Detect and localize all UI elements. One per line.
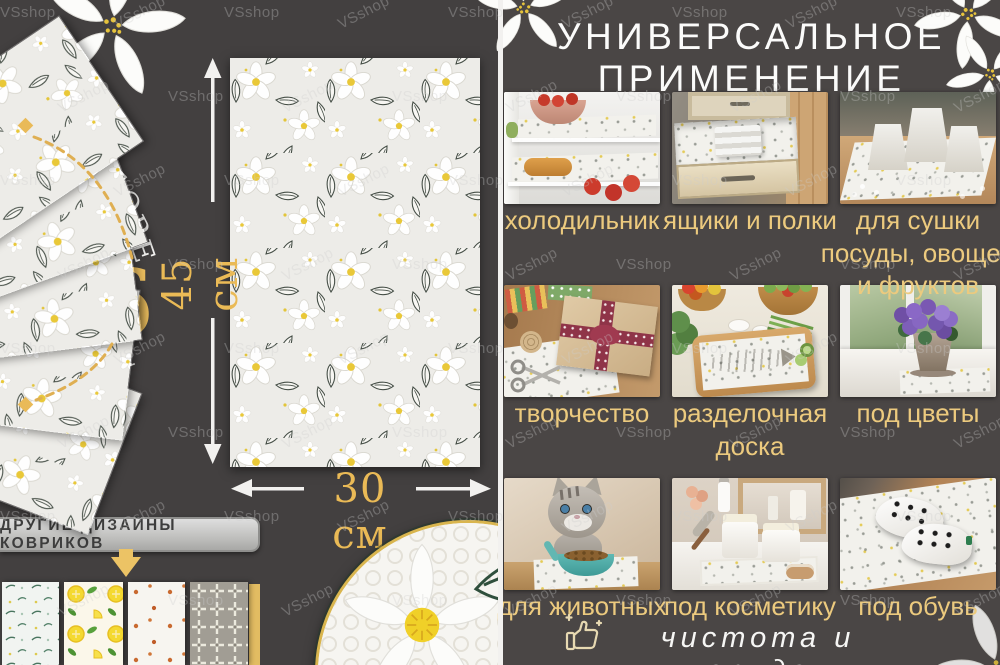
banner-down-arrow-icon [111,549,141,577]
use-caption-shoes: под обувь [818,590,1000,623]
photo-white-clogs-on-liner [840,478,996,590]
dashed-arc [34,137,132,400]
use-caption-flowers: под цветы [818,397,1000,430]
photo-cutting-board-fish-on-liner [672,285,828,397]
dimension-overlay [0,0,498,665]
gold-diamond-icon [18,397,34,413]
page-title-line1: УНИВЕРСАЛЬНОЕ [503,16,1000,58]
use-caption-drying: для сушки посуды, овощей и фруктов [818,204,1000,302]
width-dimension-arrow [231,479,491,497]
photo-gift-wrapping-crafts-on-liner [504,285,660,397]
gold-diamond-icon [18,118,34,134]
thumbs-up-icon [560,612,608,660]
scissors-icon [508,357,572,393]
product-infographic: ВНАБОРЕ 6 ШТУК [0,0,1000,665]
photo-fridge-shelves-with-liners [504,92,660,204]
panel-divider [498,0,503,665]
tagline: чистота и порядок [608,622,908,665]
photo-kitten-feeding-bowl-on-liner [504,478,660,590]
height-dimension-arrow [204,58,222,464]
photo-cosmetic-jars-on-liner [672,478,828,590]
photo-cups-drying-on-liner [840,92,996,204]
photo-open-drawer-with-liner [672,92,828,204]
left-panel: ВНАБОРЕ 6 ШТУК [0,0,498,665]
photo-flower-pot-on-liner-windowsill [840,285,996,397]
